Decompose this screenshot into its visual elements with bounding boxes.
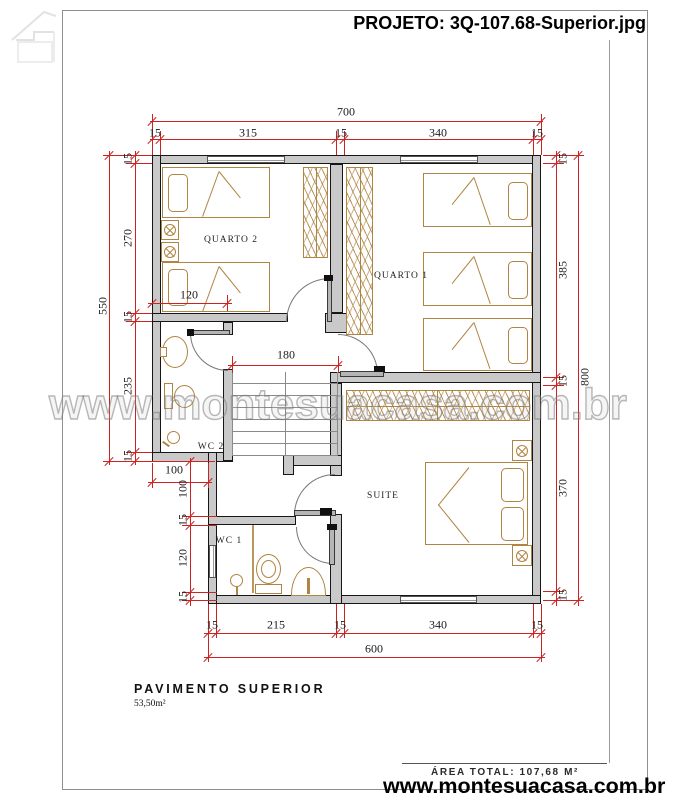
lamp-icon [516,445,528,457]
nightstand-quarto2-2 [161,242,179,262]
bed-quarto1-2 [423,252,532,306]
dimension-value: 270 [121,229,136,247]
wardrobe-quarto2 [303,167,328,258]
window-quarto1 [400,156,478,163]
pillow-icon [508,327,528,364]
website-link[interactable]: www.montesuacasa.com.br [383,774,665,799]
door-leaf-wc2 [190,330,230,335]
pillow-icon [501,468,524,502]
shower-stem-wc1-icon [236,587,238,595]
room-label-suite: SUITE [367,491,399,501]
shower-head-wc2-icon [167,431,180,444]
extension-line [227,295,228,311]
dimension-value: 700 [337,105,355,120]
door-leaf-quarto2 [327,278,332,322]
nightstand-suite-top [512,440,532,461]
dimension-value: 550 [96,297,111,315]
extension-line [232,356,233,373]
dimension-value: 180 [277,348,295,363]
dimension-value: 15 [206,618,218,633]
dimension-value: 15 [176,591,191,603]
door-hinge-wc1 [327,524,337,530]
drawing-sheet: PROJETO: 3Q-107.68-Superior.jpg [0,0,674,800]
lamp-icon [164,246,176,258]
dimension-value: 15 [556,589,571,601]
footer-separator-line [402,763,607,764]
dimension-value: 15 [531,618,543,633]
door-hinge-quarto2 [324,275,333,281]
dimension-value: 600 [365,642,383,657]
pillow-icon [168,174,188,212]
door-hinge-suite [320,508,332,515]
wardrobe-quarto1 [346,167,373,335]
bed-quarto1-3 [423,318,532,371]
dimension-value: 100 [176,480,191,498]
dimension-value: 385 [556,261,571,279]
dimension-value: 340 [429,126,447,141]
toilet-wc1-bowl-inner-icon [261,560,276,578]
extension-line [152,463,153,488]
extension-line [208,463,209,488]
window-wc1 [209,545,216,578]
door-hinge-quarto1 [374,366,385,372]
dimension-line [148,303,232,304]
dimension-value: 15 [334,618,346,633]
bed-quarto2-bottom [162,262,270,312]
room-label-quarto-1: QUARTO 1 [374,271,428,281]
shower-partition-wc1 [252,525,254,593]
window-suite [400,596,477,603]
dimension-value: 315 [239,126,257,141]
sink-wc1-tap-icon [307,578,310,594]
dimension-value: 215 [267,618,285,633]
bed-quarto2-top [162,167,270,218]
bed-suite-double [425,462,528,545]
dimension-value: 15 [335,126,347,141]
dimension-value: 340 [429,618,447,633]
dimension-value: 15 [149,126,161,141]
dimension-value: 15 [121,311,136,323]
room-label-wc-2: WC 2 [198,442,224,452]
pillow-icon [508,182,528,220]
logo-house-sketch-icon [6,6,64,68]
bed-quarto1-1 [423,173,532,227]
dimension-line [204,633,545,634]
dimension-value: 100 [165,463,183,478]
dimension-value: 15 [176,514,191,526]
room-label-quarto-2: QUARTO 2 [204,235,258,245]
lamp-icon [164,224,176,236]
dimension-value: 15 [121,450,136,462]
extension-line [208,604,209,662]
nightstand-quarto2-1 [161,220,179,240]
sheet-title: PROJETO: 3Q-107.68-Superior.jpg [353,13,646,34]
dimension-line [228,365,342,366]
dimension-line [150,121,543,122]
door-hinge-wc2 [187,329,194,336]
watermark-text: www.montesuacasa.com.br [30,380,646,430]
wall-exterior-bottom [208,595,541,604]
nightstand-suite-bottom [512,545,532,566]
lamp-icon [516,550,528,562]
extension-line [541,604,542,662]
wall-wc1-north [208,516,296,525]
extension-line [338,356,339,373]
dimension-value: 15 [531,126,543,141]
wall-stairwell-stub-jamb [283,455,294,475]
plan-area-label: 53,50m² [134,699,166,709]
dimension-value: 120 [176,549,191,567]
pillow-icon [501,507,524,541]
room-label-wc-1: WC 1 [216,536,242,546]
pillow-icon [508,261,528,299]
window-quarto2 [207,156,285,163]
dimension-value: 15 [121,153,136,165]
shower-head-wc1-icon [230,574,243,587]
dimension-value: 15 [556,153,571,165]
dimension-value: 370 [556,479,571,497]
sink-wc2-tap-icon [160,347,167,357]
dimension-line [204,657,545,658]
toilet-wc1-tank-icon [255,584,282,594]
wall-quarto2-south [152,313,288,322]
wall-exterior-west-lower [208,452,217,604]
plan-title: PAVIMENTO SUPERIOR [134,682,325,696]
dimension-value: 120 [180,288,198,303]
door-leaf-wc1 [329,528,335,565]
